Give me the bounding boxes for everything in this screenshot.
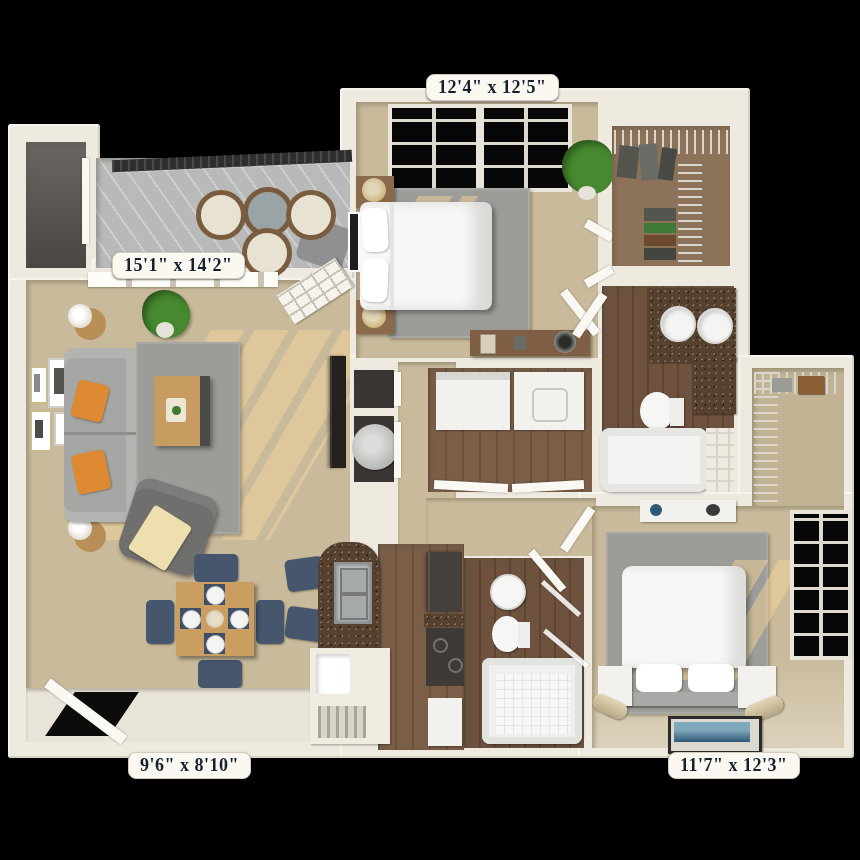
bed-queen (360, 202, 492, 310)
plant-pot (578, 186, 596, 200)
pillow (688, 664, 734, 692)
kitchen-shelf-unit (310, 648, 390, 744)
plate (182, 610, 201, 629)
floor-plan-canvas: 12'4" x 12'5" 15'1" x 14'2" 9'6" x 8'10"… (0, 0, 860, 860)
dining-chair (146, 600, 174, 644)
shelf-cubby (316, 654, 350, 694)
sofa-cushion-seam (64, 432, 140, 435)
tub-tile-deck (706, 428, 734, 492)
art-print (54, 368, 64, 394)
bedroom1-window (388, 104, 480, 192)
dimension-label-bedroom2: 11'7" x 12'3" (668, 752, 800, 779)
art-print (674, 722, 750, 742)
hanging-clothes (616, 145, 639, 179)
dimension-label-living: 15'1" x 14'2" (112, 252, 245, 279)
wall-art-frame (30, 366, 48, 404)
storage-box (798, 376, 824, 394)
folded-clothes (644, 223, 676, 233)
dryer-door (532, 388, 568, 422)
refrigerator (428, 552, 462, 612)
folded-clothes (644, 235, 676, 246)
art-print (35, 420, 43, 438)
patio-chair (242, 228, 292, 278)
sink (697, 308, 733, 344)
water-heater (352, 424, 398, 470)
bedroom1-window (480, 104, 572, 192)
utility-door (394, 422, 401, 478)
dresser (640, 500, 736, 522)
bathroom1-vanity-return (692, 356, 736, 414)
toilet-tank (670, 398, 684, 426)
dining-chair (198, 660, 242, 688)
washer (436, 372, 510, 430)
desk-item (480, 334, 496, 354)
tv (330, 356, 346, 468)
pillow (361, 257, 389, 302)
burner (448, 658, 463, 673)
shower-tile (496, 674, 570, 734)
art-print (34, 374, 40, 392)
hanging-clothes (638, 143, 659, 180)
storage-door (82, 158, 89, 244)
framed-art (668, 716, 762, 754)
folded-clothes (644, 248, 676, 260)
coffee-table-tray (166, 398, 186, 422)
bed-full (622, 566, 746, 668)
desk-item (514, 336, 526, 350)
dishwasher (428, 698, 462, 746)
patio-chair (286, 190, 336, 240)
pedestal-sink (490, 574, 526, 610)
washer-controls (436, 372, 510, 380)
duvet-fold (390, 202, 394, 310)
pillow (361, 207, 389, 252)
sink-basin (340, 568, 368, 594)
sink (660, 306, 696, 342)
closet1-wire-shelf (678, 158, 702, 262)
bedroom1-wall-art (348, 212, 360, 272)
bathtub (600, 428, 708, 492)
sofa (64, 348, 140, 522)
dining-chair (194, 554, 238, 582)
utility-door (394, 372, 401, 406)
dimension-label-bedroom1: 12'4" x 12'5" (426, 74, 559, 101)
dimension-label-entry: 9'6" x 8'10" (128, 752, 251, 779)
plant-pot (156, 322, 174, 338)
table-lamp (68, 304, 92, 328)
dresser-decor (706, 504, 720, 516)
kitchen-sink (334, 562, 372, 624)
tub-shower (482, 658, 582, 744)
burner (433, 638, 448, 653)
dryer (514, 372, 584, 430)
table-lamp (362, 178, 386, 202)
closet2-wire-shelf (754, 372, 840, 394)
kitchen-counter (424, 614, 464, 626)
sink-basin (340, 594, 368, 620)
toilet-tank (518, 622, 530, 648)
plate (206, 635, 225, 654)
dresser-decor (650, 504, 662, 516)
stove (426, 628, 464, 686)
storage-box (772, 378, 792, 392)
plate (230, 610, 249, 629)
bedroom2-window (790, 510, 852, 660)
tray-plant (172, 406, 181, 415)
dining-chair (256, 600, 284, 644)
storage-closet-floor (26, 142, 86, 268)
folded-clothes (644, 208, 676, 221)
utility-closet-upper (354, 370, 394, 408)
pillow (636, 664, 682, 692)
toilet (640, 392, 674, 430)
plate (206, 586, 225, 605)
centerpiece (206, 610, 224, 628)
dining-table (176, 582, 254, 656)
wall-art-frame (30, 410, 52, 452)
patio-chair (196, 190, 246, 240)
headboard (620, 692, 748, 706)
shelf-grille (318, 706, 366, 738)
